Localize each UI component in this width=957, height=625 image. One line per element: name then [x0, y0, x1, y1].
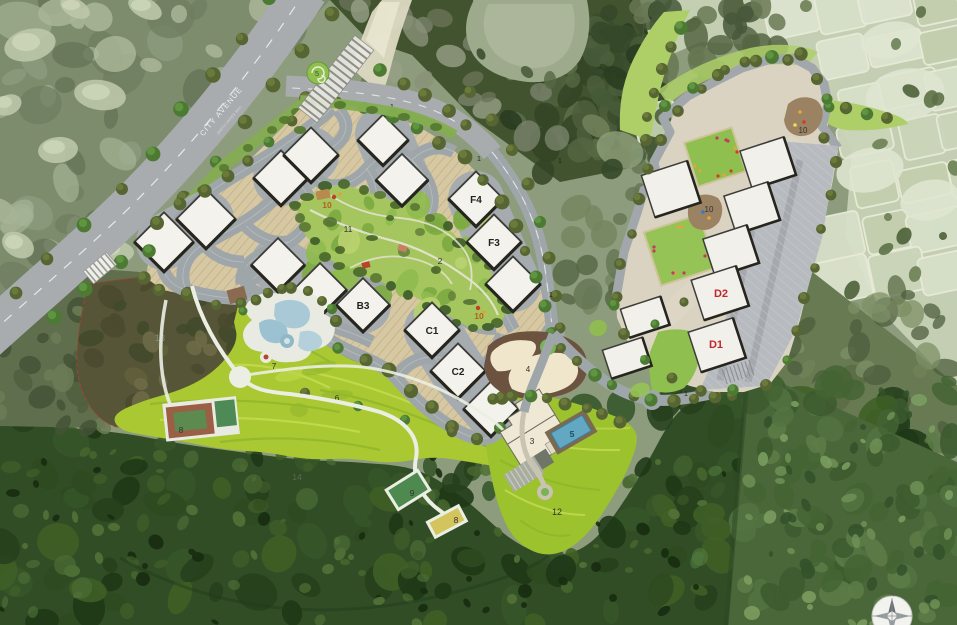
svg-text:1: 1 [549, 292, 553, 299]
svg-text:C2: C2 [452, 367, 465, 378]
svg-text:12: 12 [552, 507, 562, 517]
svg-text:2: 2 [438, 256, 443, 266]
svg-text:F3: F3 [488, 238, 500, 249]
svg-text:10: 10 [474, 311, 484, 321]
svg-text:9: 9 [410, 488, 415, 498]
svg-text:N: N [890, 592, 894, 598]
svg-text:D2: D2 [714, 288, 728, 300]
svg-text:10: 10 [799, 126, 808, 135]
svg-text:3: 3 [530, 436, 535, 446]
svg-text:C1: C1 [426, 326, 439, 337]
svg-text:1: 1 [684, 391, 688, 398]
svg-text:1: 1 [477, 156, 481, 163]
svg-text:F4: F4 [470, 195, 482, 206]
svg-text:10: 10 [322, 200, 332, 210]
svg-text:4: 4 [526, 365, 531, 374]
svg-text:14: 14 [292, 472, 302, 482]
svg-text:D1: D1 [709, 339, 723, 351]
svg-text:5: 5 [570, 429, 575, 439]
svg-text:11: 11 [344, 224, 353, 234]
svg-text:8: 8 [179, 425, 184, 435]
svg-text:10: 10 [705, 205, 714, 214]
svg-text:5: 5 [315, 69, 319, 78]
svg-text:8: 8 [454, 515, 459, 525]
svg-text:1: 1 [558, 158, 562, 165]
svg-text:B3: B3 [357, 301, 370, 312]
